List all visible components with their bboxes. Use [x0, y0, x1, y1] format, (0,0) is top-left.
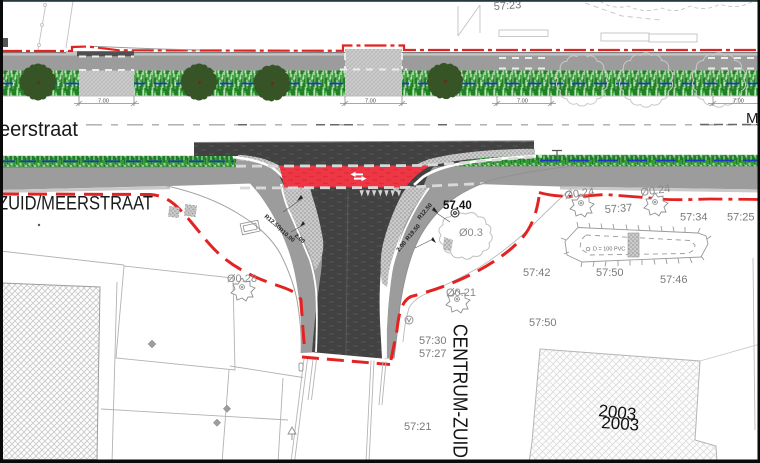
svg-text:57:46: 57:46 [660, 274, 688, 286]
svg-text:7.00: 7.00 [517, 98, 528, 104]
svg-text:7.00: 7.00 [733, 98, 744, 104]
svg-text:57:34: 57:34 [680, 212, 708, 224]
svg-text:57:23: 57:23 [493, 0, 521, 13]
svg-text:57:25: 57:25 [727, 212, 755, 224]
svg-text:7.00: 7.00 [98, 98, 109, 104]
svg-text:D = 100 PVC: D = 100 PVC [593, 247, 625, 253]
svg-text:57:27: 57:27 [419, 348, 447, 360]
svg-text:Ø0.28: Ø0.28 [227, 273, 257, 285]
svg-text:57:50: 57:50 [529, 317, 557, 329]
svg-text:2003: 2003 [601, 413, 640, 435]
svg-text:57.40: 57.40 [443, 200, 472, 212]
svg-text:Ø0.21: Ø0.21 [446, 287, 476, 299]
svg-text:57:50: 57:50 [596, 267, 624, 279]
svg-text:57:21: 57:21 [404, 421, 432, 433]
svg-text:57:37: 57:37 [604, 202, 632, 216]
svg-text:57:42: 57:42 [523, 267, 551, 279]
svg-text:CENTRUM-ZUID: CENTRUM-ZUID [449, 324, 472, 458]
svg-text:7.00: 7.00 [365, 98, 376, 104]
svg-text:57:30: 57:30 [419, 335, 447, 347]
svg-text:M: M [746, 110, 759, 127]
svg-text:eerstraat: eerstraat [0, 118, 78, 141]
svg-text:ZUID/MEERSTRAAT: ZUID/MEERSTRAAT [0, 194, 153, 215]
svg-text:Ø0.3: Ø0.3 [459, 227, 483, 239]
